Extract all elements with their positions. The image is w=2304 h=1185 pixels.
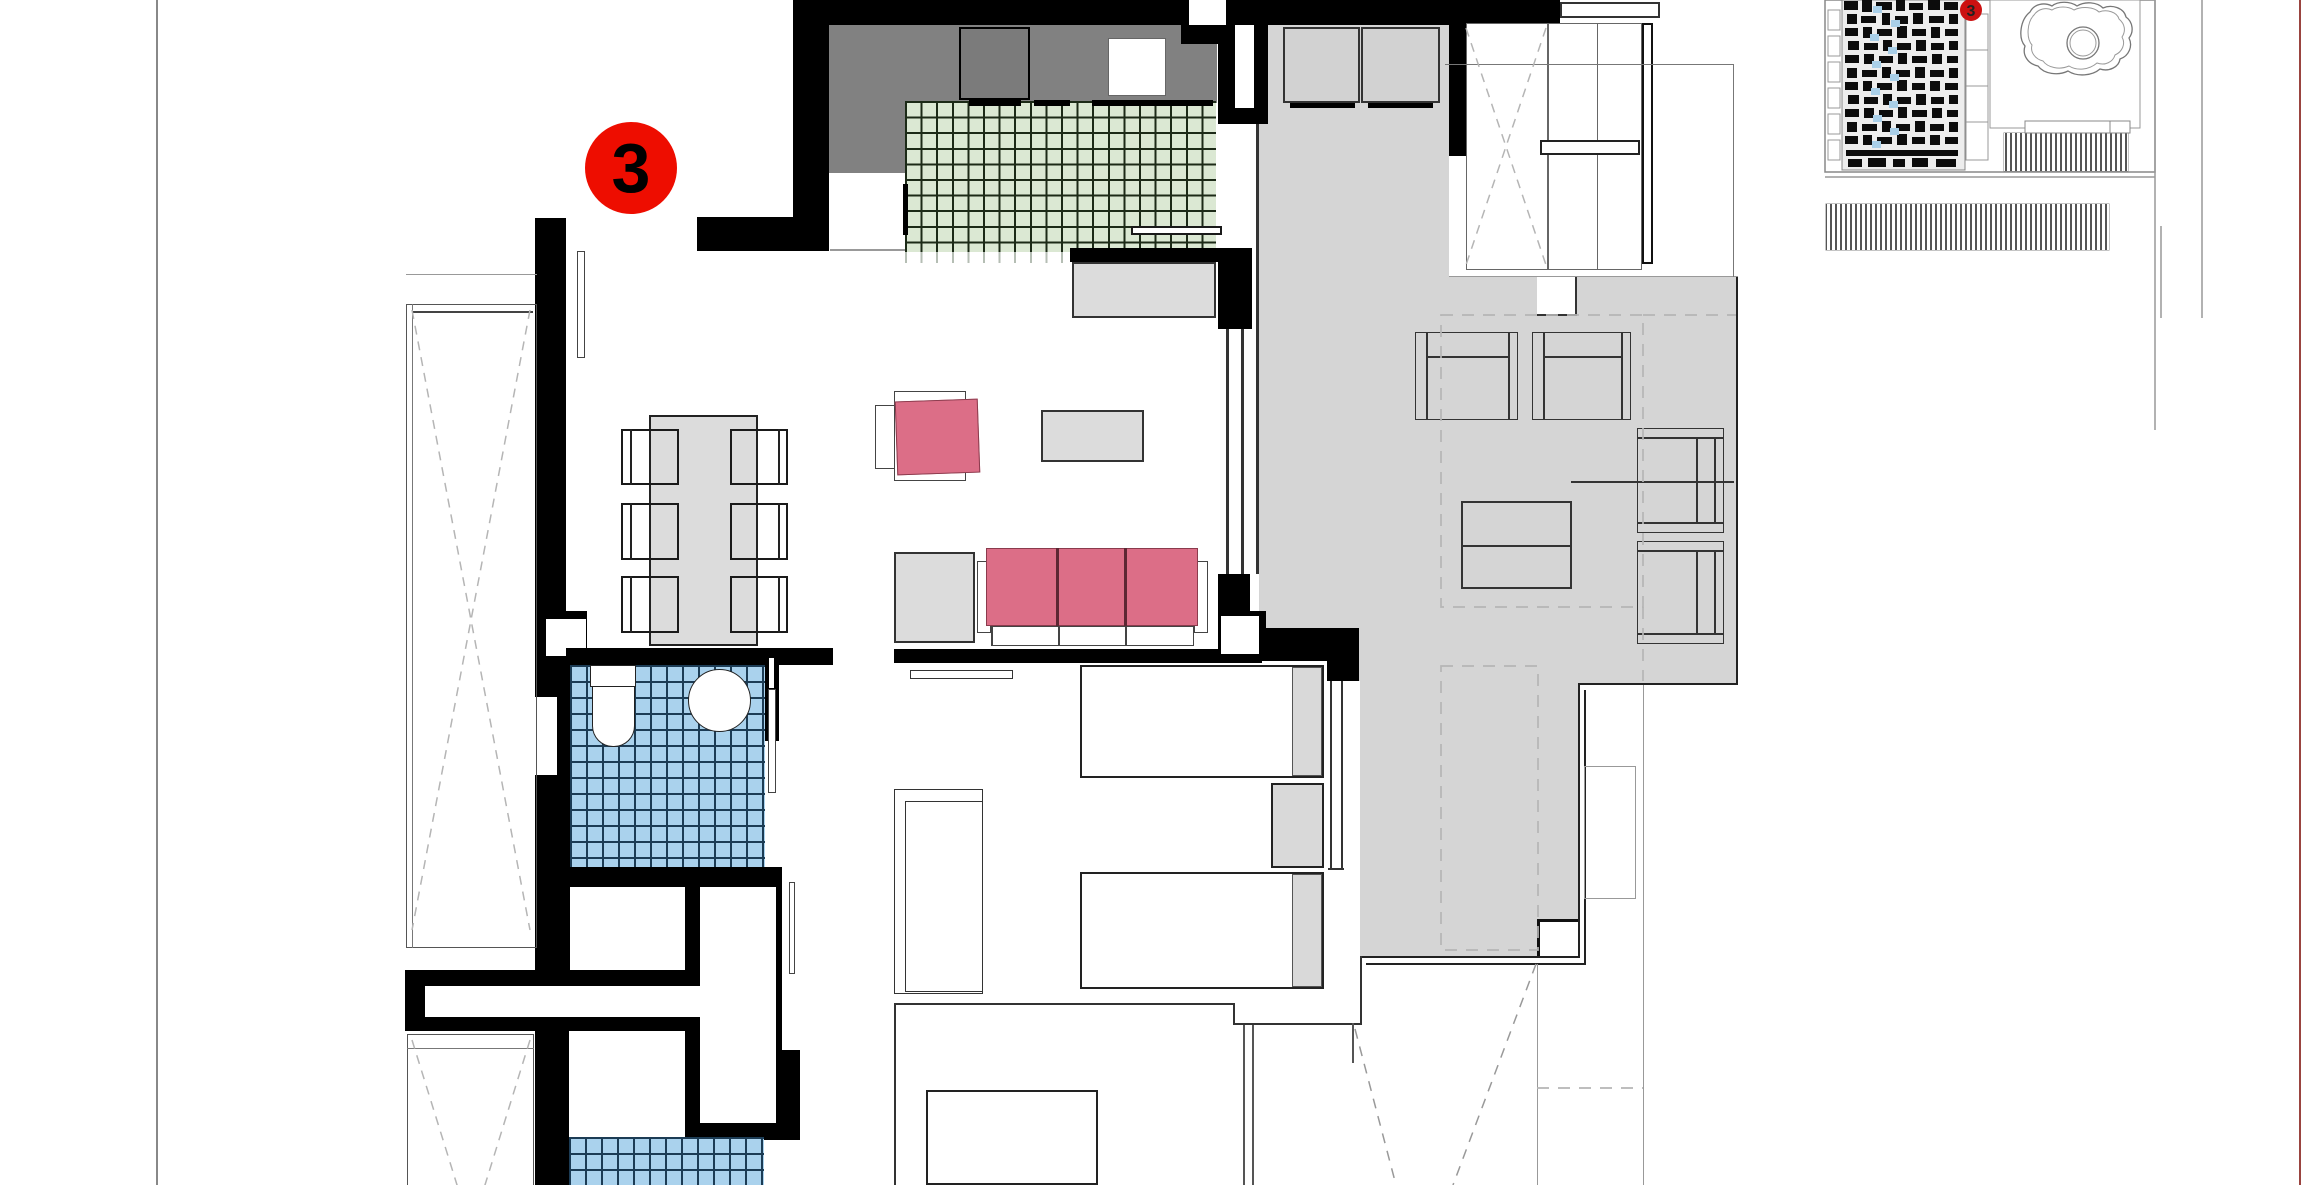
svg-text:3: 3 xyxy=(1967,3,1976,20)
